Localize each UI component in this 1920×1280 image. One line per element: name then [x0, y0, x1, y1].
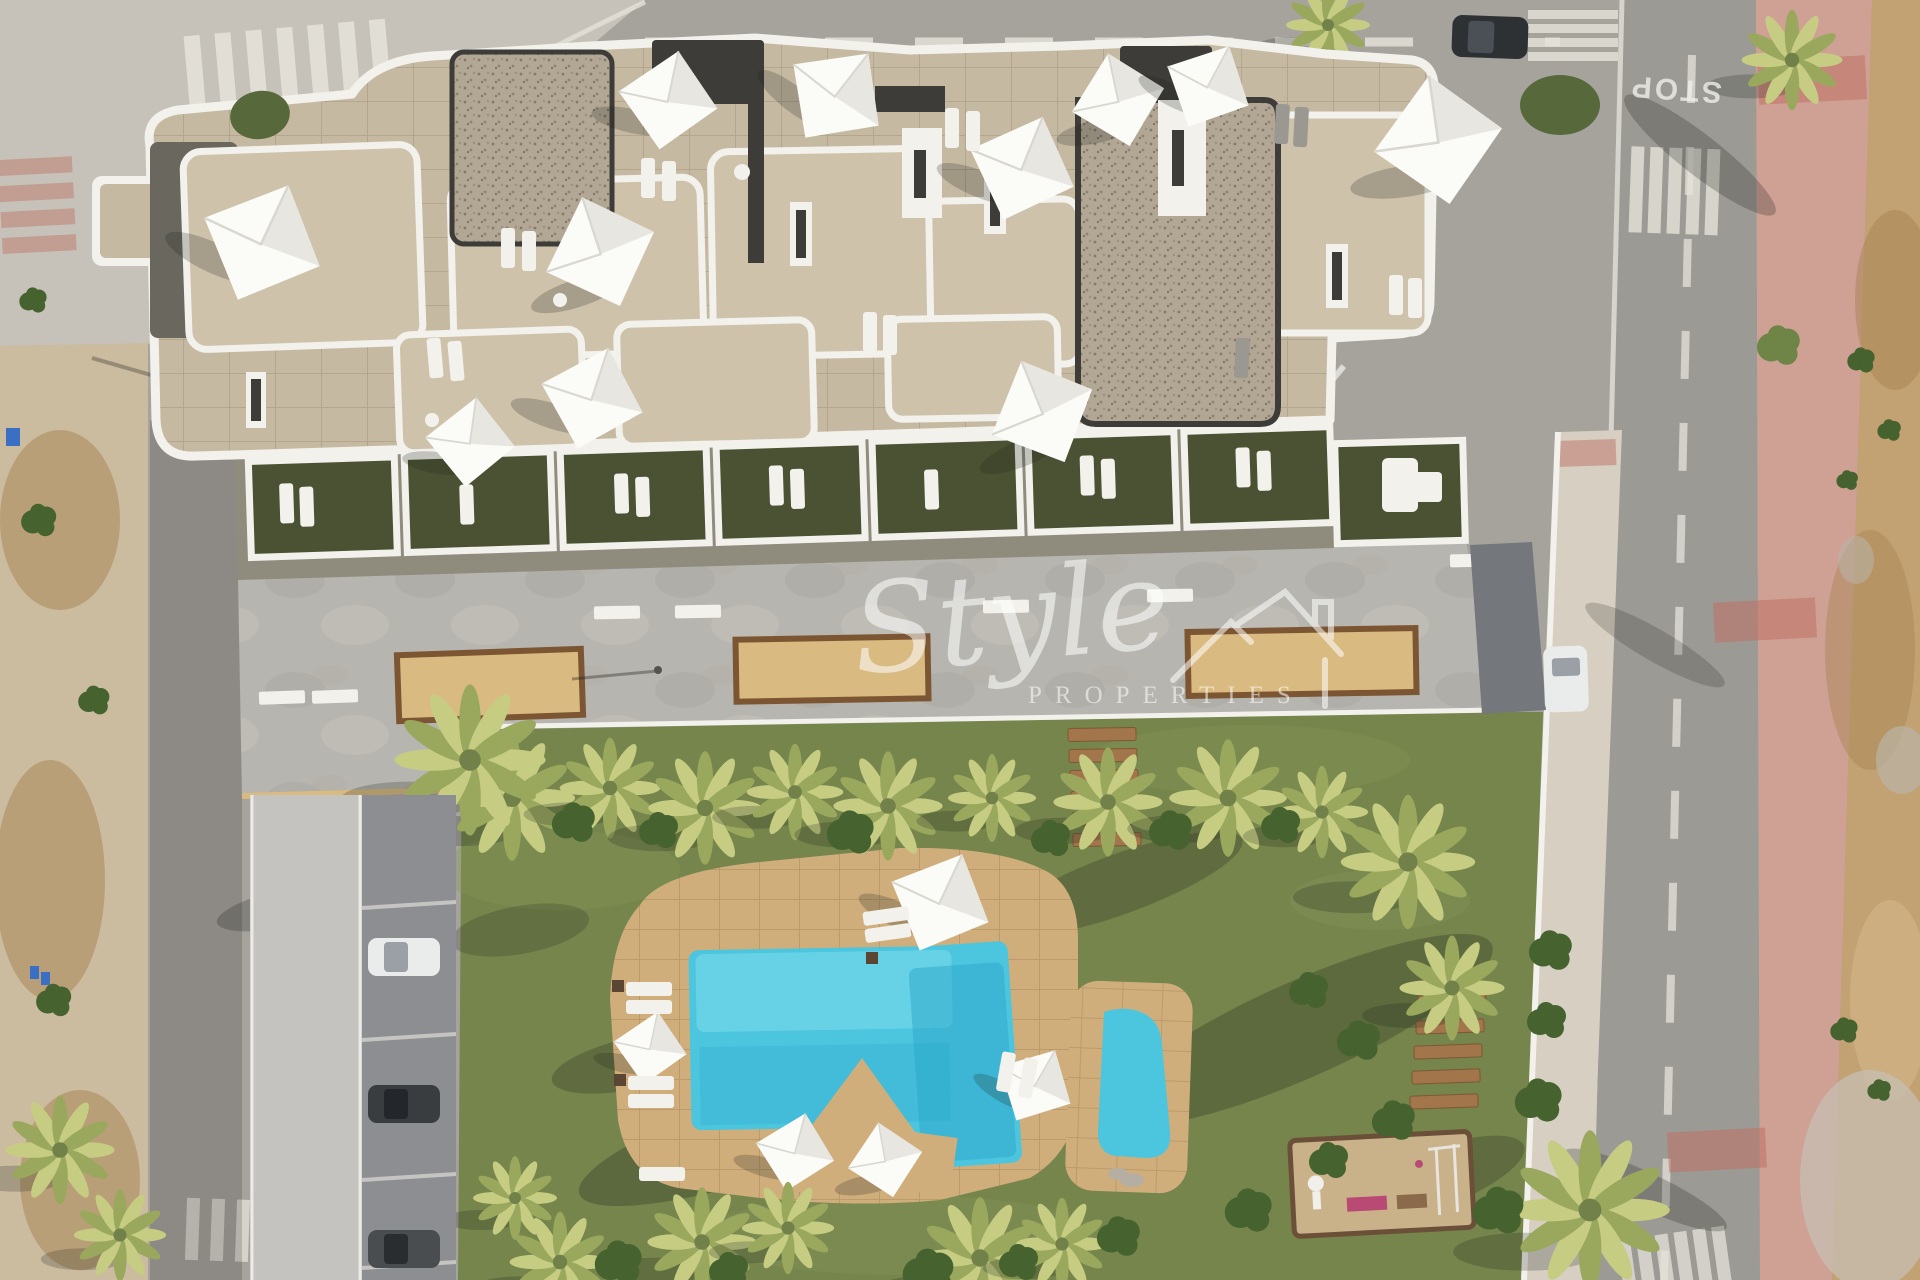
aerial-property-render: STOP Style PROPERTIES — [0, 0, 1920, 1280]
roof-terrace — [616, 319, 814, 446]
planter — [1187, 628, 1416, 696]
spring-toy-post — [1312, 1191, 1321, 1209]
parked-car-street — [1543, 645, 1589, 712]
vent-box — [875, 86, 945, 112]
playground — [1290, 1131, 1475, 1236]
parked-car-white — [368, 938, 440, 976]
car-on-top-road — [1451, 15, 1528, 60]
party-wall — [748, 58, 764, 263]
red-paver-band — [1556, 439, 1617, 467]
carport-roof — [250, 795, 362, 1280]
parked-car-dark — [368, 1085, 440, 1123]
planter — [735, 636, 928, 701]
play-bench — [1347, 1196, 1388, 1212]
corner-hedge — [1520, 75, 1600, 135]
private-garden — [560, 447, 709, 548]
stop-road-marking: STOP — [1641, 69, 1723, 108]
side-balcony-floor — [100, 184, 156, 258]
building-shadow-on-road — [150, 420, 242, 1280]
play-mat — [1397, 1194, 1428, 1210]
private-garden — [248, 457, 397, 558]
scene-canvas — [0, 0, 1920, 1280]
parked-car-dark — [368, 1230, 440, 1268]
